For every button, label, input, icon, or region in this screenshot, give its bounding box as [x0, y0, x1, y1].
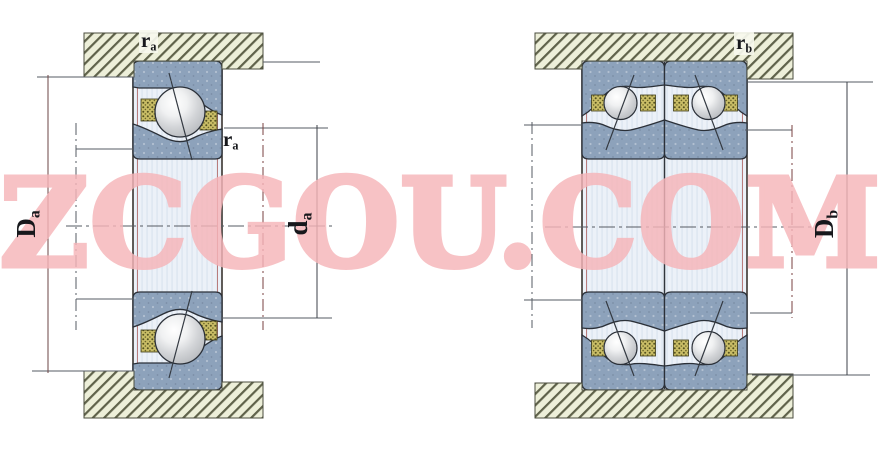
housing-diameter-label-Da: Da: [13, 198, 43, 250]
ball-bottom-right: [692, 332, 725, 365]
bearing-mounting-drawing: ZCGOU.COM ra ra rb Da da Db: [0, 0, 881, 452]
ball-top: [155, 87, 205, 137]
fillet-radius-label-rb-top: rb: [734, 32, 754, 55]
housing-diameter-label-Db: Db: [811, 198, 841, 250]
fillet-radius-label-ra-side: ra: [221, 129, 240, 152]
ball-top-left: [604, 87, 637, 120]
ball-top-right: [692, 87, 725, 120]
shaft-diameter-label-da: da: [285, 198, 315, 250]
fillet-radius-label-ra-top: ra: [139, 30, 158, 53]
ball-bottom-left: [604, 332, 637, 365]
technical-diagram-canvas: [0, 0, 881, 452]
ball-bottom: [155, 314, 205, 364]
